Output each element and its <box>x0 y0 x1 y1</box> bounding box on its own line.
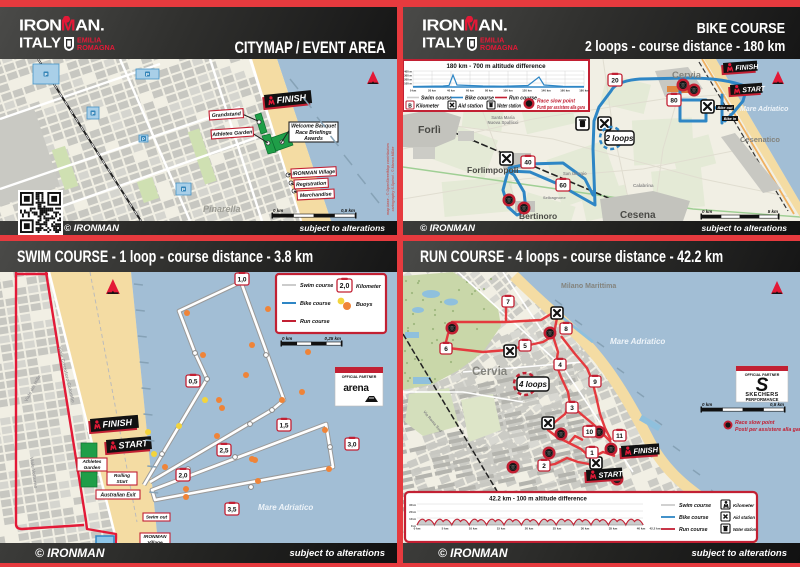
svg-text:120 km: 120 km <box>522 89 532 93</box>
svg-text:Aid station: Aid station <box>457 104 483 110</box>
svg-text:10 m: 10 m <box>409 517 416 521</box>
svg-text:ROMAGNA: ROMAGNA <box>77 43 115 52</box>
svg-text:20 m: 20 m <box>409 510 416 514</box>
svg-text:0 km: 0 km <box>702 402 712 407</box>
svg-text:10: 10 <box>586 429 594 436</box>
svg-text:Australian Exit: Australian Exit <box>99 492 135 498</box>
svg-text:map base - © OpenStreetMap con: map base - © OpenStreetMap contributors <box>386 143 390 215</box>
svg-text:IRON: IRON <box>19 17 62 35</box>
svg-text:Swim out: Swim out <box>146 515 168 521</box>
svg-text:Swim course: Swim course <box>421 96 452 102</box>
svg-text:35 km: 35 km <box>609 527 618 531</box>
svg-text:Posti per assistere alla gara: Posti per assistere alla gara <box>735 427 800 433</box>
svg-text:Punti per assistere alla gara: Punti per assistere alla gara <box>537 105 585 111</box>
svg-text:Mare Adriatico: Mare Adriatico <box>610 337 665 346</box>
svg-text:Pinarella: Pinarella <box>203 204 241 214</box>
svg-text:3,0: 3,0 <box>347 441 356 448</box>
svg-text:Kilometer: Kilometer <box>733 503 755 509</box>
svg-text:M: M <box>61 17 76 35</box>
svg-text:Race Briefings: Race Briefings <box>295 130 331 136</box>
svg-text:Mare Adriatico: Mare Adriatico <box>740 106 789 113</box>
svg-text:Swim course: Swim course <box>679 503 711 509</box>
svg-text:M: M <box>464 17 479 35</box>
svg-text:AN.: AN. <box>478 17 507 35</box>
svg-text:180 km - 700 m altitude differ: 180 km - 700 m altitude difference <box>446 63 546 70</box>
svg-text:P: P <box>44 72 47 77</box>
svg-text:Bike in: Bike in <box>724 117 737 121</box>
svg-text:cartography S.Spinol - © Manca: cartography S.Spinol - © Manca MDke <box>391 147 395 212</box>
svg-text:Mare Adriatico: Mare Adriatico <box>258 503 313 512</box>
svg-text:Swim course: Swim course <box>300 283 333 289</box>
svg-text:3,5: 3,5 <box>227 506 236 513</box>
svg-text:0 km: 0 km <box>410 89 417 93</box>
svg-text:Start: Start <box>117 479 128 485</box>
svg-text:80 km: 80 km <box>485 89 493 93</box>
svg-text:Awards: Awards <box>303 136 323 142</box>
svg-text:160 km: 160 km <box>560 89 570 93</box>
svg-text:Water station: Water station <box>733 527 756 533</box>
svg-text:9: 9 <box>593 379 597 386</box>
svg-text:Water station: Water station <box>497 104 521 110</box>
svg-text:AN.: AN. <box>75 17 104 35</box>
svg-text:0,5: 0,5 <box>188 378 197 385</box>
svg-text:180 km: 180 km <box>579 89 589 93</box>
svg-text:Cervia: Cervia <box>672 70 702 81</box>
svg-text:40 km: 40 km <box>447 89 455 93</box>
svg-text:4: 4 <box>558 362 562 369</box>
svg-text:Buoys: Buoys <box>356 302 372 308</box>
svg-text:100 km: 100 km <box>503 89 513 93</box>
svg-text:0,25 km: 0,25 km <box>324 336 341 341</box>
svg-text:40 km: 40 km <box>637 527 646 531</box>
svg-text:Calabrina: Calabrina <box>633 183 654 188</box>
svg-text:0,5 km: 0,5 km <box>341 208 355 213</box>
svg-text:0,5 km: 0,5 km <box>770 402 784 407</box>
svg-text:3: 3 <box>570 405 574 412</box>
svg-text:0 km: 0 km <box>414 527 421 531</box>
svg-text:Welcome Banquet: Welcome Banquet <box>291 123 336 129</box>
svg-text:Nuova Spallicci: Nuova Spallicci <box>488 120 519 125</box>
svg-text:4 loops: 4 loops <box>518 380 548 389</box>
svg-text:30 km: 30 km <box>581 527 590 531</box>
svg-text:ITALY: ITALY <box>422 35 464 52</box>
svg-text:80: 80 <box>670 97 678 104</box>
svg-text:Run course: Run course <box>679 527 708 533</box>
svg-text:P: P <box>91 111 94 116</box>
svg-text:P: P <box>142 136 145 141</box>
svg-text:OFFICIAL PARTNER: OFFICIAL PARTNER <box>342 375 377 379</box>
svg-text:1: 1 <box>590 450 594 457</box>
svg-text:Milano Marittima: Milano Marittima <box>561 283 616 290</box>
svg-text:P: P <box>182 187 185 192</box>
svg-text:Race slow point: Race slow point <box>537 99 575 105</box>
svg-text:15 km: 15 km <box>497 527 506 531</box>
svg-text:START: START <box>598 469 624 480</box>
svg-text:Rolling: Rolling <box>114 473 130 479</box>
svg-text:Race slow point: Race slow point <box>735 420 775 426</box>
svg-text:5: 5 <box>523 343 527 350</box>
svg-text:42.2 km: 42.2 km <box>649 527 660 531</box>
svg-text:8: 8 <box>564 326 568 333</box>
svg-text:Forlimpopoli: Forlimpopoli <box>467 165 518 175</box>
svg-text:60: 60 <box>559 182 567 189</box>
svg-text:30 m: 30 m <box>409 503 416 507</box>
svg-text:P: P <box>146 72 149 77</box>
svg-text:0 km: 0 km <box>282 336 292 341</box>
svg-text:B: B <box>408 103 412 109</box>
svg-text:11: 11 <box>616 433 623 440</box>
svg-text:ROMAGNA: ROMAGNA <box>480 43 518 52</box>
svg-text:Cesenatico: Cesenatico <box>740 135 780 144</box>
svg-text:2 loops: 2 loops <box>604 134 634 143</box>
svg-text:0 km: 0 km <box>273 208 283 213</box>
svg-text:5 km: 5 km <box>768 209 778 214</box>
svg-text:42.2 km - 100 m altitude diffe: 42.2 km - 100 m altitude difference <box>489 497 587 503</box>
svg-text:San Giorgio: San Giorgio <box>563 171 587 176</box>
svg-text:20 km: 20 km <box>428 89 436 93</box>
svg-text:1,0: 1,0 <box>237 276 246 283</box>
svg-text:20: 20 <box>611 77 619 84</box>
svg-text:20 km: 20 km <box>525 527 534 531</box>
svg-text:140 km: 140 km <box>541 89 551 93</box>
svg-text:Bike out: Bike out <box>718 106 734 110</box>
svg-text:Run course: Run course <box>300 319 330 325</box>
svg-text:IRON: IRON <box>422 17 465 35</box>
svg-text:7: 7 <box>506 299 510 306</box>
svg-text:Cervia: Cervia <box>472 366 508 378</box>
svg-text:Athletes: Athletes <box>82 459 102 465</box>
svg-text:6: 6 <box>444 346 448 353</box>
svg-text:2: 2 <box>542 463 546 470</box>
svg-text:Forlì: Forlì <box>418 124 441 136</box>
svg-text:Garden: Garden <box>84 465 101 471</box>
svg-text:Aid station: Aid station <box>732 515 755 521</box>
svg-text:Selbagnone: Selbagnone <box>543 195 566 200</box>
svg-text:Bike course: Bike course <box>679 515 709 521</box>
svg-text:Bike course: Bike course <box>300 301 331 307</box>
svg-text:2,0: 2,0 <box>178 472 187 479</box>
svg-text:0 km: 0 km <box>702 209 712 214</box>
svg-text:1,5: 1,5 <box>279 422 288 429</box>
svg-text:5 km: 5 km <box>442 527 449 531</box>
svg-text:arena: arena <box>343 383 369 394</box>
svg-text:10 km: 10 km <box>469 527 478 531</box>
svg-text:25 km: 25 km <box>553 527 562 531</box>
svg-text:Cesena: Cesena <box>620 210 656 221</box>
svg-text:IRONMAN: IRONMAN <box>144 534 167 540</box>
svg-text:ITALY: ITALY <box>19 35 61 52</box>
svg-text:60 km: 60 km <box>466 89 474 93</box>
svg-text:2,5: 2,5 <box>219 447 228 454</box>
svg-text:Kilometer: Kilometer <box>416 104 440 110</box>
svg-text:FINISH: FINISH <box>633 445 659 456</box>
svg-text:Kilometer: Kilometer <box>356 284 382 290</box>
svg-text:100 m: 100 m <box>404 82 412 86</box>
svg-text:40: 40 <box>524 159 532 166</box>
svg-text:2,0: 2,0 <box>340 283 350 290</box>
